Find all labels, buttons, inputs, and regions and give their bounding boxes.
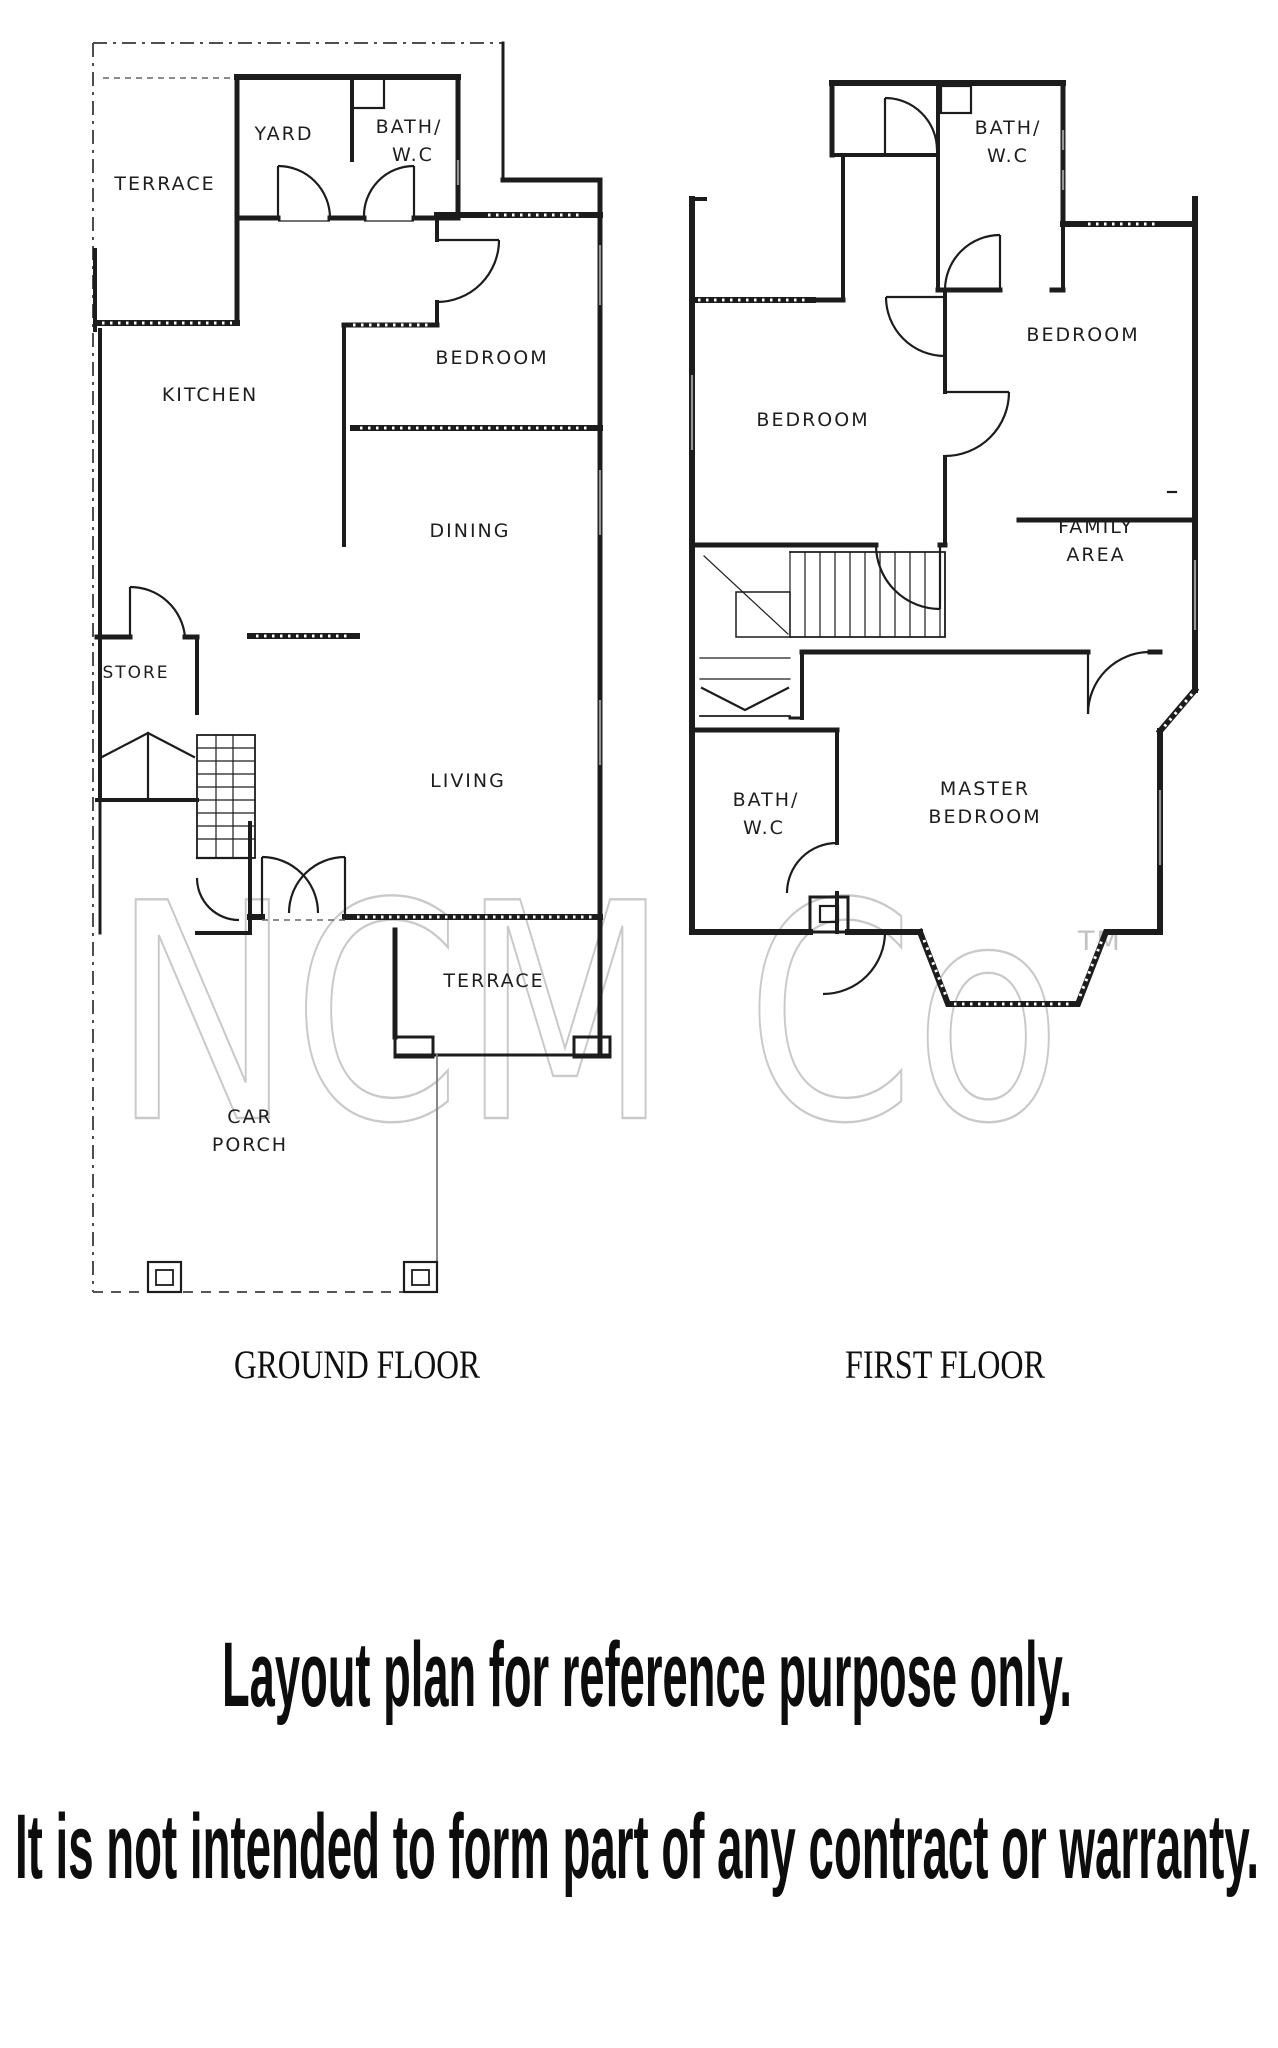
door-arc — [130, 587, 185, 637]
room-label-kitchen: KITCHEN — [162, 384, 258, 406]
room-label-master-bedroom: BEDROOM — [928, 806, 1041, 828]
room-label-store: STORE — [102, 663, 169, 683]
room-label-bedroom-left: BEDROOM — [756, 409, 869, 431]
room-label-living: LIVING — [430, 770, 506, 792]
door-arc — [945, 235, 1000, 290]
door-arc — [437, 240, 499, 302]
car-porch-columns — [148, 1262, 437, 1292]
room-label-car-porch: CAR — [227, 1106, 272, 1128]
room-label-bedroom-right: BEDROOM — [1026, 324, 1139, 346]
room-label-bath: W.C — [392, 144, 434, 166]
disclaimer-line2: It is not intended to form part of any c… — [15, 1796, 1259, 1898]
room-label-car-porch: PORCH — [212, 1134, 288, 1156]
staircase — [700, 552, 945, 716]
first-floor-caption: FIRST FLOOR — [845, 1342, 1045, 1387]
room-label-family-area: AREA — [1066, 544, 1125, 566]
room-label-bath-lower: BATH/ — [733, 789, 800, 811]
door-arc — [886, 297, 945, 356]
layout-plan-document: NCM Co TM — [0, 0, 1278, 2048]
disclaimer-line1: Layout plan for reference purpose only. — [222, 1624, 1072, 1726]
door-arc — [885, 98, 937, 150]
door-arc — [364, 166, 414, 218]
door-arc — [945, 392, 1009, 456]
ground-floor-caption: GROUND FLOOR — [234, 1342, 480, 1387]
room-label-yard: YARD — [254, 123, 314, 145]
room-label-bath: BATH/ — [376, 116, 443, 138]
staircase — [197, 735, 255, 858]
door-arc — [876, 545, 940, 609]
door-arc — [278, 166, 330, 218]
wc-fixture — [941, 86, 971, 113]
room-label-terrace: TERRACE — [113, 173, 215, 195]
room-label-bath-lower: W.C — [743, 817, 785, 839]
room-label-bath: W.C — [987, 145, 1029, 167]
room-label-dining: DINING — [430, 520, 511, 542]
room-label-terrace-bottom: TERRACE — [442, 970, 544, 992]
room-label-family-area: FAMILY — [1058, 516, 1134, 538]
room-label-bath: BATH/ — [975, 117, 1042, 139]
wc-fixture — [352, 77, 384, 108]
room-label-bedroom: BEDROOM — [435, 347, 548, 369]
floor-plan-image: NCM Co TM — [0, 0, 1278, 2048]
room-label-master-bedroom: MASTER — [940, 778, 1030, 800]
door-arc — [1088, 652, 1150, 714]
